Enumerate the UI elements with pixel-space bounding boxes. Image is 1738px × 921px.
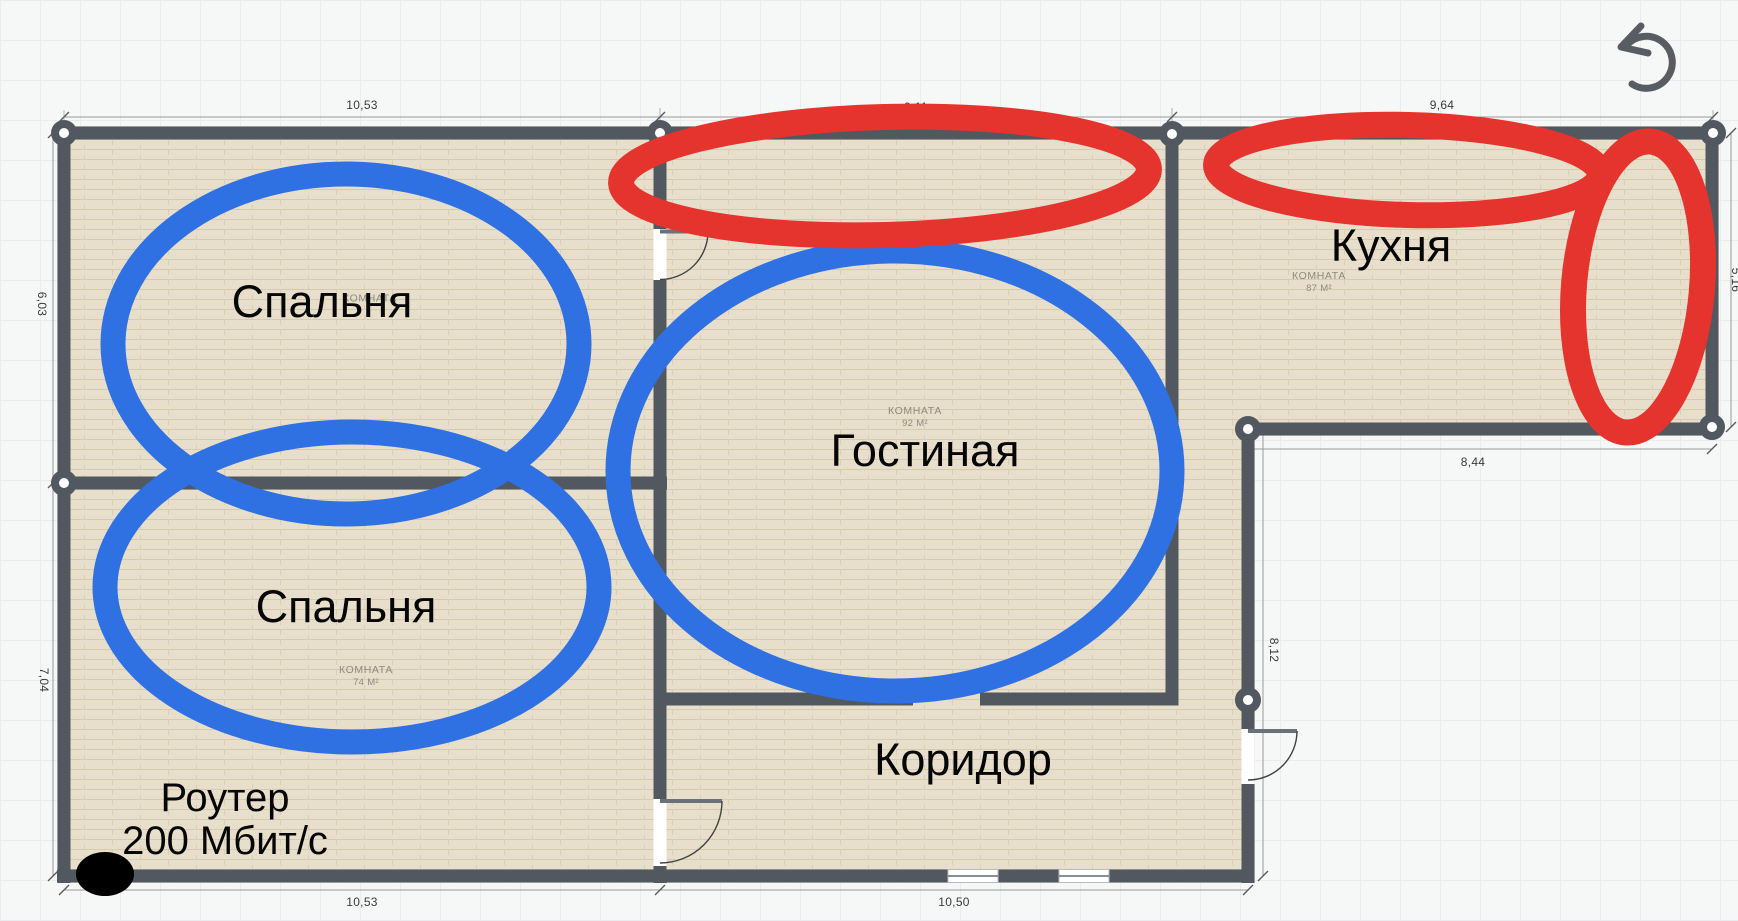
room-label-bedroom-top: Спальня [232,276,413,328]
red-ellipse-living-top-wall [620,110,1151,242]
room-label-corridor: Коридор [874,734,1052,786]
red-ellipse-kitchen-top-wall [1215,120,1601,220]
router-note: Роутер 200 Мбит/с [122,777,328,863]
room-label-bedroom-bottom: Спальня [256,581,437,633]
undo-icon[interactable] [1621,26,1672,88]
router-note-line1: Роутер [122,777,328,820]
router-note-line2: 200 Мбит/с [122,820,328,863]
floor-plan-canvas: 10,53 9,11 9,64 10,53 10,50 6,03 7,04 8,… [0,0,1738,921]
room-label-kitchen: Кухня [1331,220,1451,272]
room-label-living-room: Гостиная [831,425,1020,477]
